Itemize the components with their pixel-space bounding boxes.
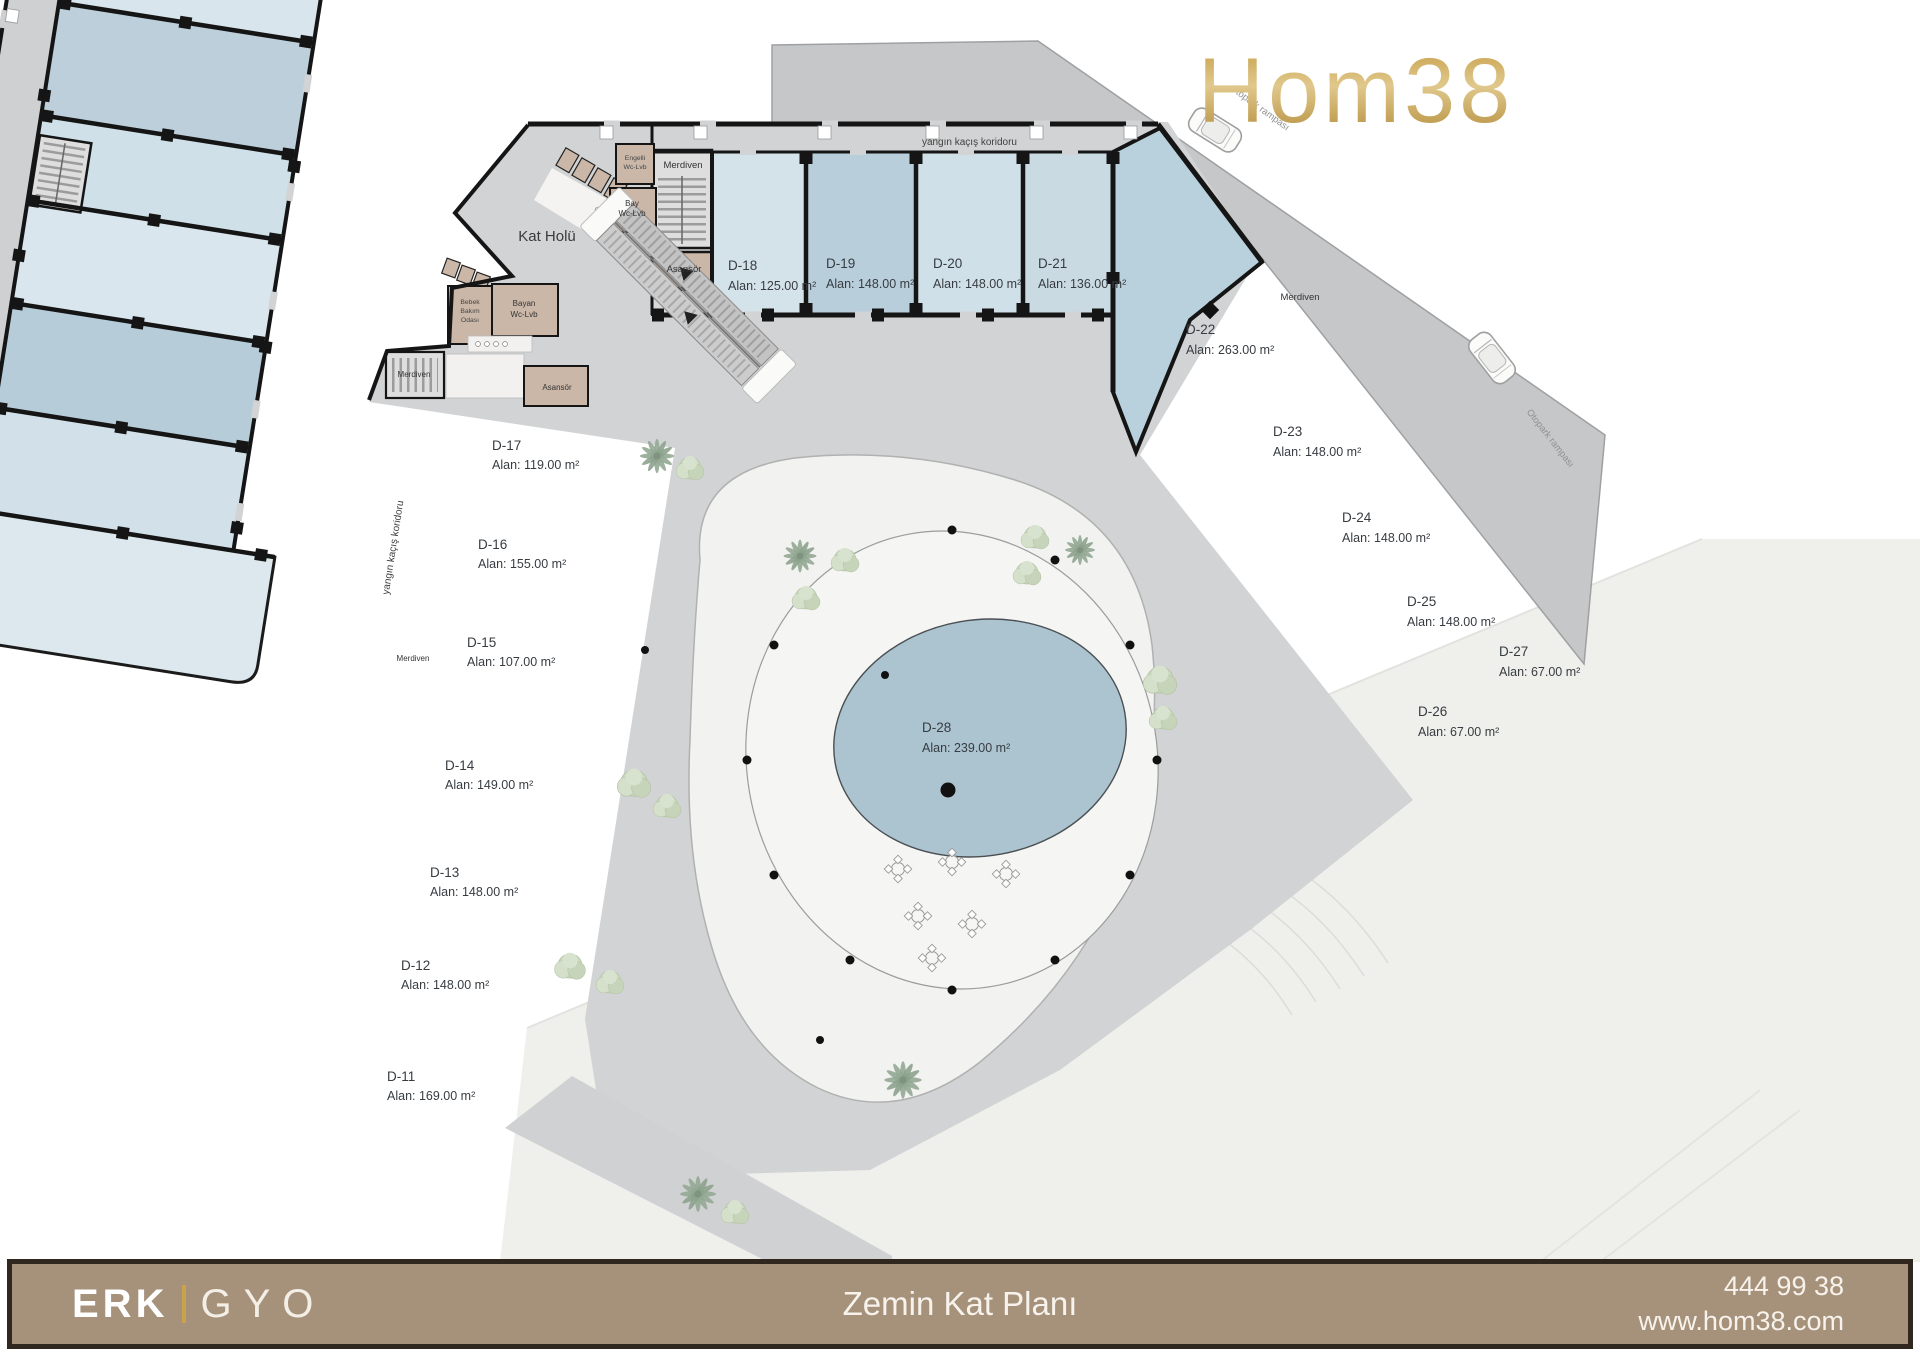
floor-plan-title: Zemin Kat Planı	[843, 1285, 1078, 1323]
asansor-label: Asansör	[667, 264, 702, 275]
svg-text:Alan: 148.00 m²: Alan: 148.00 m²	[933, 277, 1021, 291]
svg-text:Alan: 136.00 m²: Alan: 136.00 m²	[1038, 277, 1126, 291]
floor-plan: Otopark rampası Otopark rampası	[0, 0, 1920, 1357]
bebek-label: Bebek	[460, 299, 480, 306]
unit-d-19-label: D-19	[826, 256, 855, 271]
svg-text:Alan: 125.00 m²: Alan: 125.00 m²	[728, 279, 816, 293]
kat-holu-label: Kat Holü	[518, 228, 576, 245]
merdiven-label: Merdiven	[398, 370, 431, 379]
brand-gyo: GYO	[200, 1282, 325, 1327]
footer-bar: ERK GYO Zemin Kat Planı 444 99 38 www.ho…	[7, 1259, 1913, 1349]
unit-d-27-label: D-27	[1499, 644, 1528, 659]
unit-d-24-label: D-24	[1342, 510, 1372, 525]
svg-text:Alan: 169.00 m²: Alan: 169.00 m²	[387, 1089, 475, 1103]
left-wing	[0, 0, 368, 692]
unit-d-22-label: D-22	[1186, 322, 1215, 337]
unit-d-16-label: D-16	[478, 537, 507, 552]
asansor-label: Asansör	[542, 383, 572, 392]
page: Otopark rampası Otopark rampası	[0, 0, 1920, 1357]
brand-erk: ERK	[72, 1282, 168, 1327]
unit-d-14-label: D-14	[445, 758, 475, 773]
merdiven-label: Merdiven	[1280, 292, 1319, 303]
wc-engelli-label: Engelli	[625, 155, 646, 162]
merdiven-label: Merdiven	[397, 654, 430, 663]
phone-number: 444 99 38	[1638, 1269, 1844, 1304]
unit-d-21-label: D-21	[1038, 256, 1067, 271]
svg-text:Alan: 148.00 m²: Alan: 148.00 m²	[1273, 445, 1361, 459]
unit-d-17-label: D-17	[492, 438, 521, 453]
svg-text:Alan: 148.00 m²: Alan: 148.00 m²	[826, 277, 914, 291]
svg-text:Bakım: Bakım	[460, 308, 480, 315]
unit-d-13-label: D-13	[430, 865, 459, 880]
wc-bay-label: Bay	[625, 199, 639, 208]
svg-text:Wc-Lvb: Wc-Lvb	[623, 164, 646, 171]
svg-text:Alan: 148.00 m²: Alan: 148.00 m²	[430, 885, 518, 899]
svg-text:Alan: 67.00 m²: Alan: 67.00 m²	[1499, 665, 1580, 679]
svg-text:Odası: Odası	[461, 317, 479, 324]
merdiven-label: Merdiven	[663, 160, 702, 171]
wc-bayan-label: Bayan	[513, 299, 536, 308]
fire-corridor-label: yangın kaçış koridoru	[922, 137, 1017, 148]
unit-d-28-label: D-28	[922, 720, 951, 735]
svg-text:Alan: 148.00 m²: Alan: 148.00 m²	[401, 978, 489, 992]
svg-text:Alan: 148.00 m²: Alan: 148.00 m²	[1407, 615, 1495, 629]
unit-d-15-label: D-15	[467, 635, 496, 650]
unit-d-23-label: D-23	[1273, 424, 1302, 439]
fire-corridor-label: yangın kaçış koridoru	[381, 500, 407, 596]
bush-icon	[555, 953, 586, 979]
bebek-room	[448, 286, 492, 344]
svg-text:Alan: 263.00 m²: Alan: 263.00 m²	[1186, 343, 1274, 357]
unit-d-12-label: D-12	[401, 958, 430, 973]
svg-text:Alan: 149.00 m²: Alan: 149.00 m²	[445, 778, 533, 792]
hom38-logo: Hom38	[1198, 40, 1515, 142]
svg-text:Wc-Lvb: Wc-Lvb	[618, 209, 646, 218]
svg-text:Alan: 148.00 m²: Alan: 148.00 m²	[1342, 531, 1430, 545]
unit-d-25-label: D-25	[1407, 594, 1436, 609]
unit-d-11-label: D-11	[387, 1069, 415, 1084]
svg-text:Alan: 107.00 m²: Alan: 107.00 m²	[467, 655, 555, 669]
erk-gyo-logo: ERK GYO	[72, 1282, 325, 1327]
svg-text:Wc-Lvb: Wc-Lvb	[510, 310, 538, 319]
svg-text:Alan: 239.00 m²: Alan: 239.00 m²	[922, 741, 1010, 755]
website-url: www.hom38.com	[1638, 1304, 1844, 1339]
svg-text:Alan: 67.00 m²: Alan: 67.00 m²	[1418, 725, 1499, 739]
unit-d-22	[1113, 128, 1262, 452]
unit-d-26-label: D-26	[1418, 704, 1447, 719]
brand-divider	[182, 1285, 186, 1323]
unit-d-20-label: D-20	[933, 256, 962, 271]
unit-d-18-label: D-18	[728, 258, 757, 273]
contact-info: 444 99 38 www.hom38.com	[1638, 1269, 1844, 1339]
svg-text:Alan: 155.00 m²: Alan: 155.00 m²	[478, 557, 566, 571]
svg-text:Alan: 119.00 m²: Alan: 119.00 m²	[492, 458, 579, 472]
